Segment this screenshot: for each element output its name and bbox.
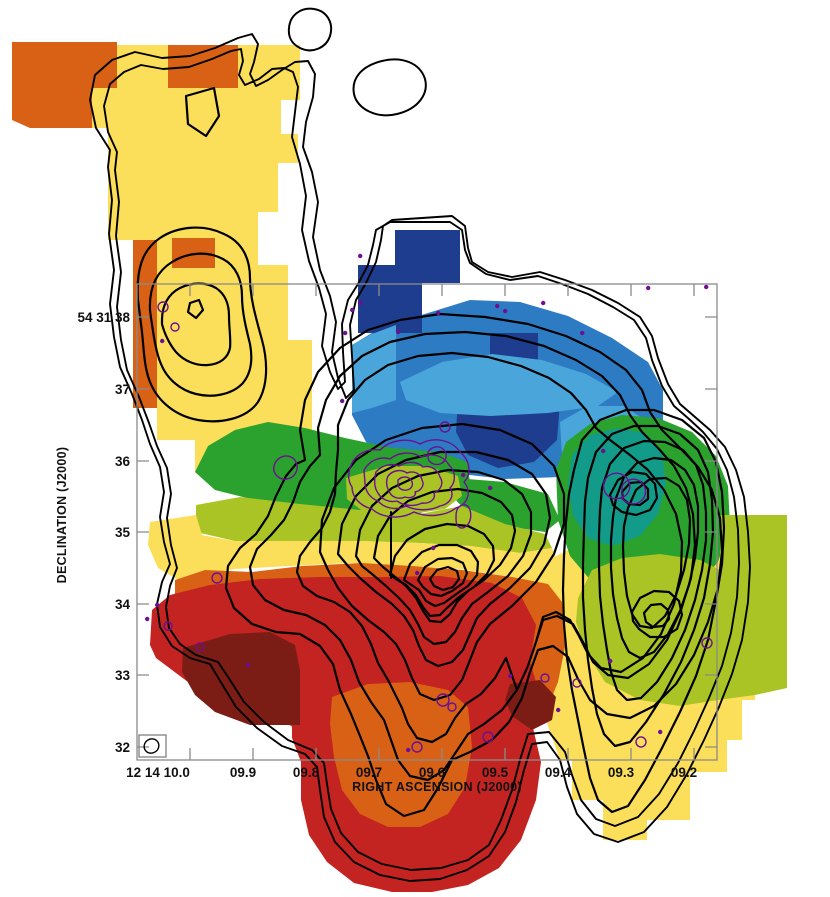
x-axis-title: RIGHT ASCENSION (J2000) [352,780,522,794]
x-tick-label-0: 12 14 10.0 [126,765,190,780]
y-tick-label-4: 34 [115,597,131,612]
y-axis-title: DECLINATION (J2000) [55,447,69,584]
x-tick-label-3: 09.7 [356,765,382,780]
x-tick-label-8: 09.2 [671,765,697,780]
x-tick-label-2: 09.8 [293,765,320,780]
y-tick-label-3: 35 [115,525,131,540]
moment-map-figure: 12 14 10.0 09.9 09.8 09.7 09.6 09.5 09.4… [0,0,830,897]
synthesized-beam-icon [141,736,161,756]
x-tick-label-5: 09.5 [482,765,509,780]
figure-canvas: 12 14 10.0 09.9 09.8 09.7 09.6 09.5 09.4… [0,0,830,897]
x-tick-label-6: 09.4 [545,765,572,780]
y-tick-label-6: 32 [115,740,130,755]
x-tick-label-7: 09.3 [608,765,635,780]
y-tick-label-1: 37 [115,382,130,397]
y-tick-label-5: 33 [115,668,131,683]
x-tick-label-4: 09.6 [419,765,446,780]
y-tick-label-2: 36 [115,454,131,469]
x-tick-label-1: 09.9 [230,765,256,780]
y-tick-label-0: 54 31 38 [77,310,130,325]
